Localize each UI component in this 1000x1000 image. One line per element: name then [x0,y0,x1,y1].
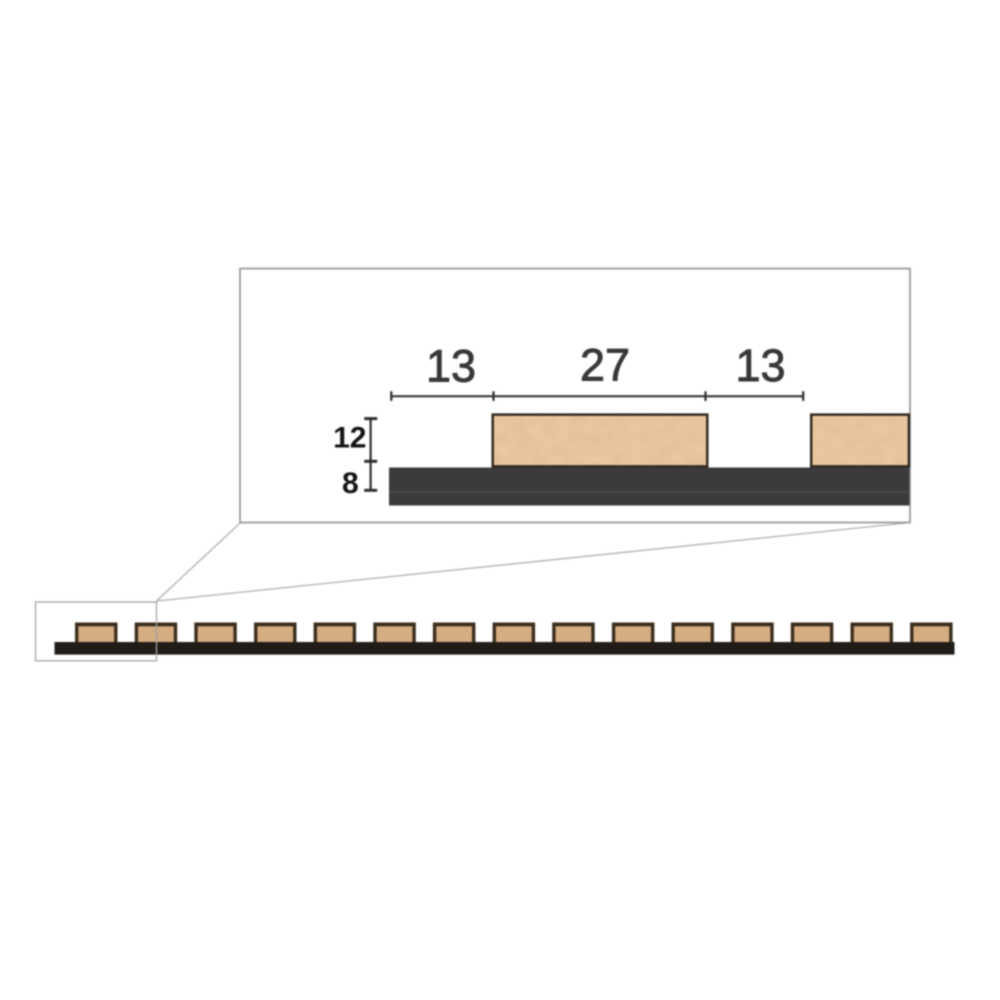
svg-text:27: 27 [580,340,630,391]
svg-text:13: 13 [426,341,476,392]
svg-text:13: 13 [735,340,785,391]
svg-text:8: 8 [342,467,359,500]
svg-text:12: 12 [333,422,366,455]
